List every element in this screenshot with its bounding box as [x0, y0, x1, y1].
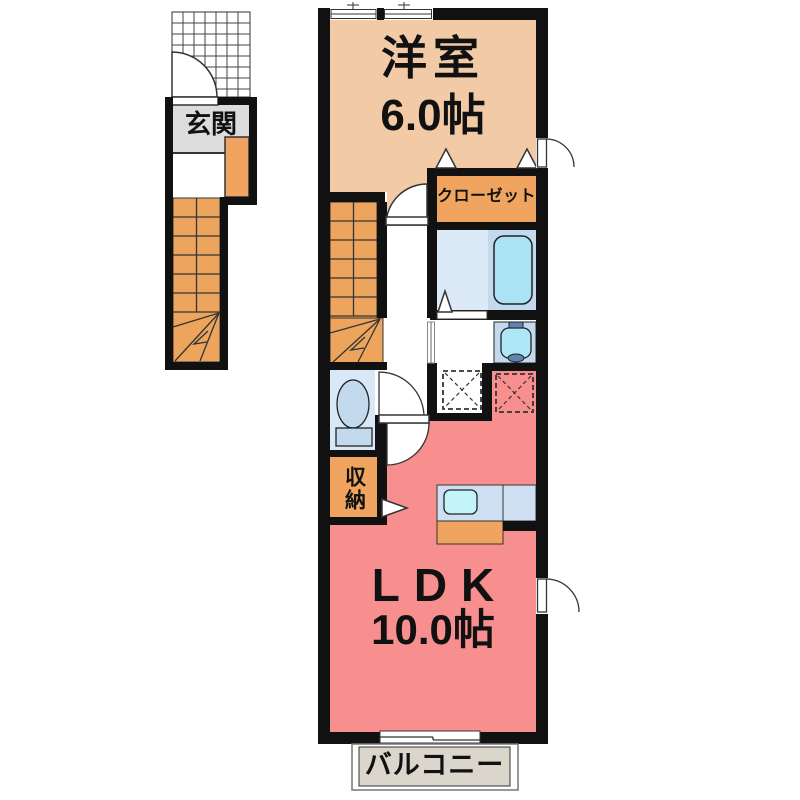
balcony-sliding-window-icon [380, 731, 480, 743]
laundry-nook-floor [437, 365, 482, 413]
ldk-label: LDK [330, 561, 536, 609]
entrance-label: 玄関 [173, 111, 249, 138]
washroom-sliding-door-icon [428, 322, 435, 363]
bathtub-icon [494, 236, 532, 304]
door-leaf [379, 415, 429, 423]
kitchen-sink-icon [444, 490, 477, 514]
balcony-label: バルコニー [359, 751, 510, 779]
shoe-cabinet-icon [225, 137, 249, 197]
stairs-first-floor [173, 198, 220, 362]
stairs-second-floor [330, 202, 383, 363]
floor-plan: 洋室 6.0帖 クローゼット 玄関 収納 LDK 10.0帖 バルコニー [0, 0, 800, 800]
storage-label: 収納 [330, 459, 377, 519]
kitchen-cabinet [437, 521, 503, 544]
western-room-window-icon [330, 2, 433, 20]
washbasin-icon [494, 322, 536, 363]
closet-label: クローゼット [437, 189, 536, 206]
western-room-label: 洋室 [330, 34, 536, 82]
side-door-lower-icon [536, 578, 579, 614]
side-door-upper-icon [536, 138, 574, 168]
ldk-size-label: 10.0帖 [330, 608, 536, 652]
toilet-icon [336, 380, 372, 446]
western-room-size-label: 6.0帖 [330, 93, 536, 139]
